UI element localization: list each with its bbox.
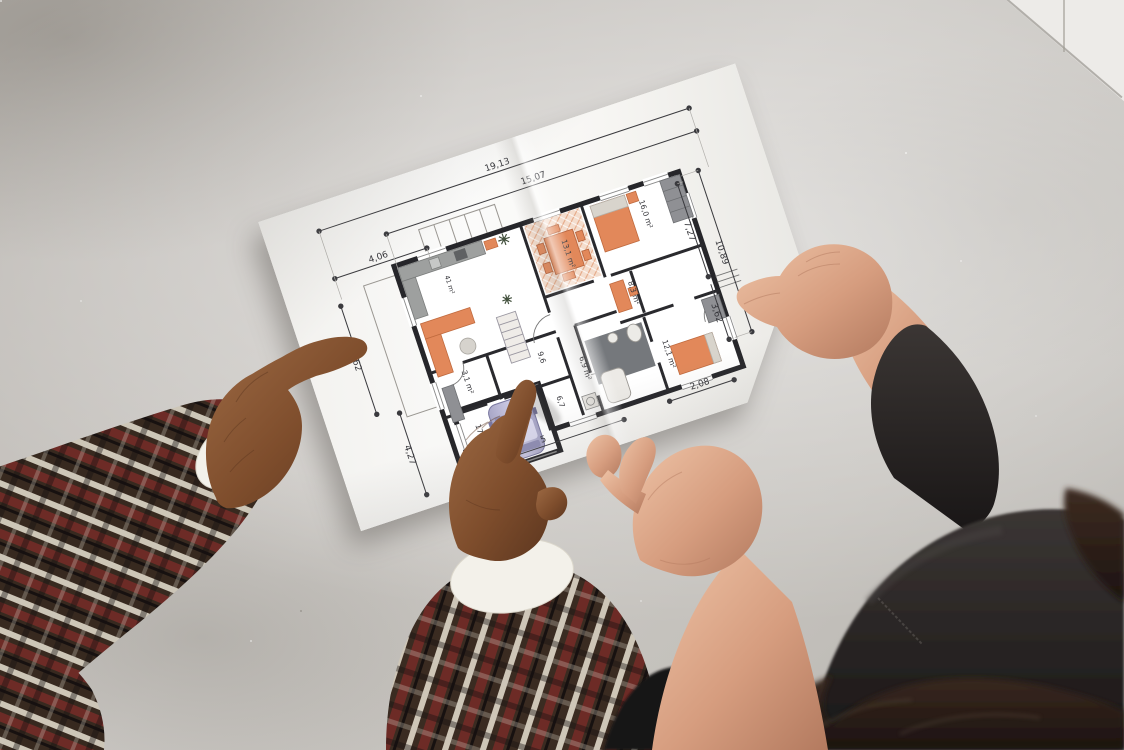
people-overlay xyxy=(0,0,1124,750)
man-pointing-hand xyxy=(449,409,549,562)
woman-right-arm xyxy=(737,244,999,532)
man-left-hand xyxy=(206,337,367,509)
man-left-arm xyxy=(0,337,367,750)
woman-left-thumb xyxy=(586,435,621,478)
photo-scene: 19,13 15,07 4,06 6,62 4,27 7,27 10,89 3,… xyxy=(0,0,1124,750)
man-thumb xyxy=(536,487,567,520)
woman-right-hand xyxy=(737,244,893,359)
woman-left-forearm xyxy=(652,550,828,750)
man-pointing-arm xyxy=(386,380,662,750)
woman-right-sleeve xyxy=(871,324,999,532)
